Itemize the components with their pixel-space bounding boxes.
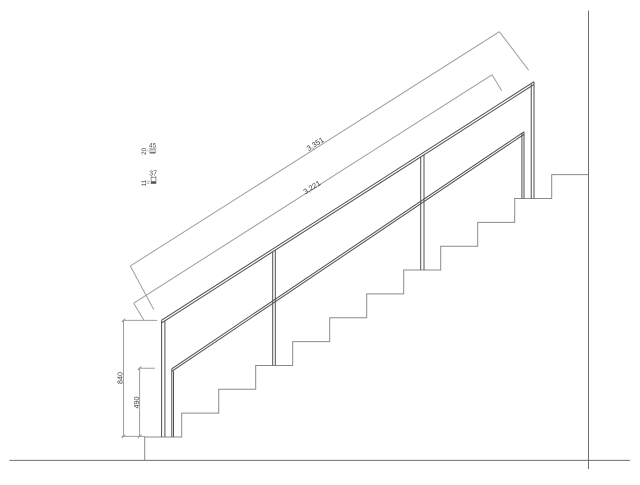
svg-text:840: 840 <box>116 372 125 384</box>
svg-text:490: 490 <box>132 397 141 409</box>
